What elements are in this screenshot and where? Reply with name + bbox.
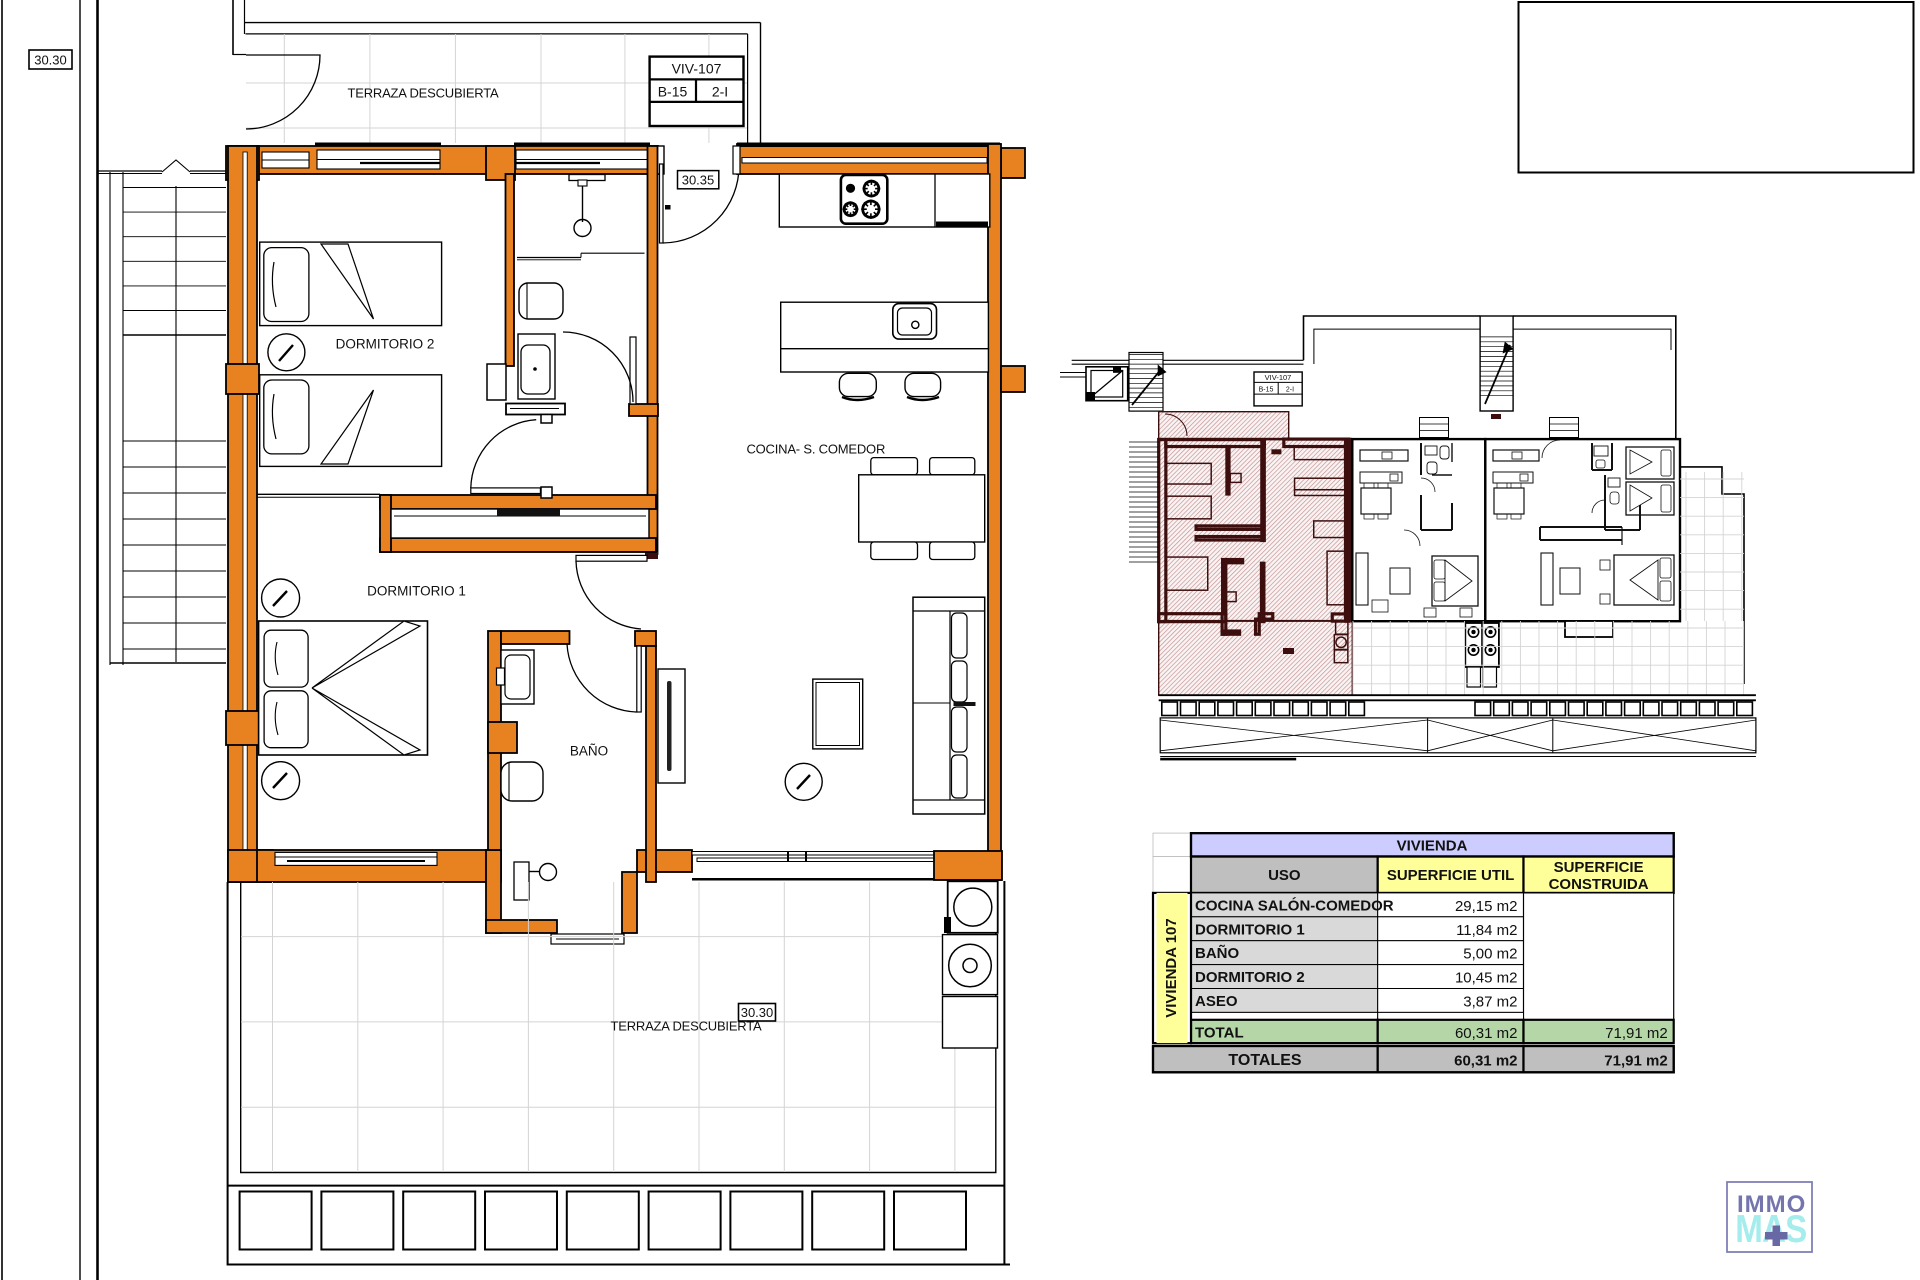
svg-text:29,15 m2: 29,15 m2 [1455,898,1518,915]
svg-text:VIVIENDA 107: VIVIENDA 107 [1163,918,1180,1018]
svg-text:2-I: 2-I [1286,387,1294,394]
svg-text:B-15: B-15 [658,84,688,100]
svg-text:11,84 m2: 11,84 m2 [1456,922,1517,939]
svg-text:DORMITORIO 2: DORMITORIO 2 [1195,969,1305,986]
svg-text:SUPERFICIE UTIL: SUPERFICIE UTIL [1387,867,1515,884]
svg-text:TOTALES: TOTALES [1228,1052,1302,1069]
svg-text:COCINA- S. COMEDOR: COCINA- S. COMEDOR [746,442,885,457]
svg-text:VIV-107: VIV-107 [672,61,722,77]
svg-text:DORMITORIO 2: DORMITORIO 2 [336,337,435,352]
svg-text:71,91 m2: 71,91 m2 [1604,1053,1667,1070]
svg-text:60,31 m2: 60,31 m2 [1454,1053,1517,1070]
svg-text:CONSTRUIDA: CONSTRUIDA [1549,876,1649,893]
svg-text:ASEO: ASEO [1195,993,1238,1010]
svg-text:30.35: 30.35 [682,172,715,187]
svg-text:VIVIENDA: VIVIENDA [1397,838,1468,855]
svg-text:TOTAL: TOTAL [1195,1024,1244,1041]
svg-text:5,00 m2: 5,00 m2 [1463,946,1517,963]
svg-text:DORMITORIO 1: DORMITORIO 1 [1195,921,1305,938]
svg-text:30.30: 30.30 [741,1005,774,1020]
svg-text:B-15: B-15 [1259,387,1274,394]
svg-text:3,87 m2: 3,87 m2 [1463,994,1517,1011]
svg-text:60,31 m2: 60,31 m2 [1455,1025,1518,1042]
svg-text:DORMITORIO 1: DORMITORIO 1 [367,584,466,599]
svg-text:MAS: MAS [1735,1206,1806,1250]
svg-text:BAÑO: BAÑO [570,744,608,759]
svg-text:BAÑO: BAÑO [1195,944,1239,962]
svg-text:71,91 m2: 71,91 m2 [1605,1025,1668,1042]
svg-text:2-I: 2-I [712,84,728,100]
svg-text:SUPERFICIE: SUPERFICIE [1554,859,1644,876]
svg-text:COCINA SALÓN-COMEDOR: COCINA SALÓN-COMEDOR [1195,896,1394,914]
svg-text:USO: USO [1268,867,1301,884]
svg-text:10,45 m2: 10,45 m2 [1455,970,1518,987]
svg-text:TERRAZA DESCUBIERTA: TERRAZA DESCUBIERTA [347,86,499,101]
svg-text:VIV-107: VIV-107 [1265,373,1292,382]
svg-text:30.30: 30.30 [34,53,67,68]
